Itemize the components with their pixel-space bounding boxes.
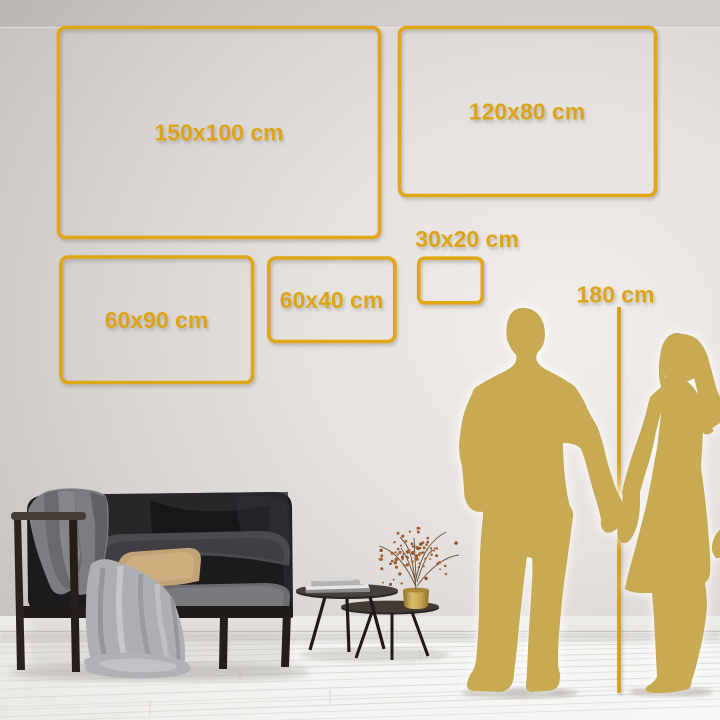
svg-text:60x40 cm: 60x40 cm [280,287,384,313]
svg-text:30x20 cm: 30x20 cm [415,226,519,252]
svg-text:120x80 cm: 120x80 cm [469,99,585,125]
svg-text:60x90 cm: 60x90 cm [105,307,209,333]
svg-text:150x100 cm: 150x100 cm [154,120,283,146]
svg-text:180 cm: 180 cm [576,282,654,308]
